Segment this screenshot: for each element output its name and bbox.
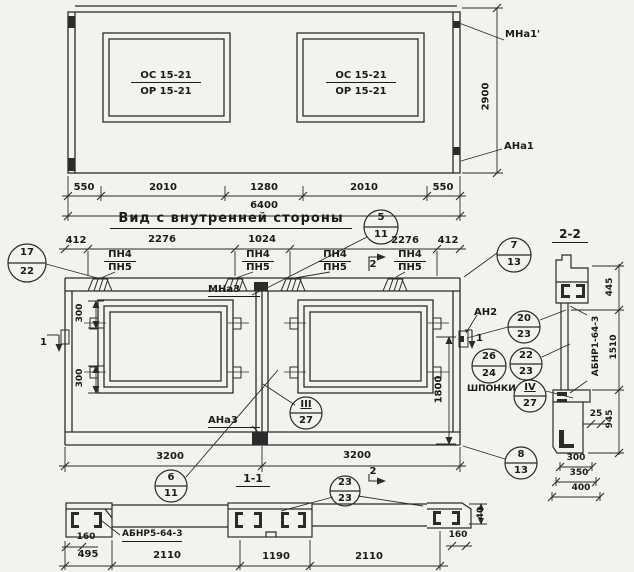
anchor-label-ana3: АНа3 xyxy=(208,415,260,428)
callout-7-sheet: 13 xyxy=(497,257,531,268)
dim-400-sec: 400 xyxy=(562,484,600,494)
hinge-pn5-3: ПН5 xyxy=(319,262,351,273)
window2-mark-bottom: ОР 15-21 xyxy=(326,86,396,97)
dim-2110-left: 2110 xyxy=(145,550,189,561)
callout-23-sheet: 23 xyxy=(330,493,360,504)
window1-mark-bottom: ОР 15-21 xyxy=(131,86,201,97)
hinge-pn4-4: ПН4 xyxy=(394,249,426,262)
dim-300-sec: 300 xyxy=(558,454,594,464)
dim-550-right: 550 xyxy=(421,182,465,193)
profile-mark-abnr5: АБНР5-64-3 xyxy=(122,530,182,542)
callout-8-sheet: 13 xyxy=(505,465,537,476)
dim-1510: 1510 xyxy=(610,325,620,369)
callout-8-num: 8 xyxy=(505,449,537,460)
callout-26-num: 26 xyxy=(472,351,506,362)
callout-7-num: 7 xyxy=(497,240,531,251)
hinge-pn5-4: ПН5 xyxy=(394,262,426,273)
hinge-pn4-2: ПН4 xyxy=(242,249,274,262)
dim-2900: 2900 xyxy=(481,79,492,115)
dim-350-sec: 350 xyxy=(560,469,598,479)
dim-25: 25 xyxy=(588,410,604,420)
callout-roman3-num: III xyxy=(290,399,322,410)
callout-roman4-num: IV xyxy=(514,382,546,393)
callout-22-num: 22 xyxy=(510,350,542,361)
callout-5-sheet: 11 xyxy=(364,229,398,240)
anchor-label-an2: АН2 xyxy=(474,307,497,318)
drawing-linework xyxy=(0,0,634,572)
dim-160-left: 160 xyxy=(72,533,100,543)
dim-3200-left: 3200 xyxy=(146,451,194,462)
dim-160-right: 160 xyxy=(444,531,472,541)
section2-mark-bottom: 2 xyxy=(366,466,380,477)
panel-drawing-sheet: ОС 15-21 ОР 15-21 ОС 15-21 ОР 15-21 МНа1… xyxy=(0,0,634,572)
dim-495: 495 xyxy=(66,549,110,560)
anchor-label-mna3: МНа3 xyxy=(208,284,260,297)
window1-mark-top: ОС 15-21 xyxy=(131,70,201,83)
dim-2276-left: 2276 xyxy=(140,234,184,245)
callout-20-sheet: 23 xyxy=(508,329,540,340)
window2-mark-top: ОС 15-21 xyxy=(326,70,396,83)
section-2-2-title: 2-2 xyxy=(552,228,588,243)
callout-22-sheet: 23 xyxy=(510,366,542,377)
callout-20-num: 20 xyxy=(508,313,540,324)
section2-mark-top: 2 xyxy=(366,259,380,270)
callout-6-sheet: 11 xyxy=(155,488,187,499)
dim-1800: 1800 xyxy=(434,370,445,410)
hinge-pn5-1: ПН5 xyxy=(104,262,136,273)
dim-300-upper: 300 xyxy=(76,295,86,331)
dim-412-left: 412 xyxy=(54,235,98,246)
dim-2110-right: 2110 xyxy=(347,551,391,562)
callout-roman4-sheet: 27 xyxy=(514,398,546,409)
hinge-pn4-3: ПН4 xyxy=(319,249,351,262)
callout-23-num: 23 xyxy=(330,477,360,488)
callout-26-sheet: 24 xyxy=(472,368,506,379)
dim-1280: 1280 xyxy=(242,182,286,193)
dim-1190: 1190 xyxy=(254,551,298,562)
dim-945: 945 xyxy=(606,401,616,437)
dim-3200-right: 3200 xyxy=(333,450,381,461)
dim-6400: 6400 xyxy=(240,200,288,211)
dim-1024: 1024 xyxy=(240,234,284,245)
section-1-1-title: 1-1 xyxy=(236,473,270,487)
anchor-label-ana1: АНа1 xyxy=(504,141,534,152)
section1-mark-left: 1 xyxy=(40,337,47,348)
anchor-label-mna1: МНа1' xyxy=(505,29,540,40)
dim-40: 40 xyxy=(477,503,487,523)
callout-5-num: 5 xyxy=(364,212,398,223)
section1-mark-right: 1 xyxy=(476,333,483,344)
keys-label: ШПОНКИ xyxy=(467,385,516,395)
dim-445: 445 xyxy=(606,269,616,305)
dim-2010-left: 2010 xyxy=(141,182,185,193)
callout-17-num: 17 xyxy=(8,247,46,258)
hinge-pn5-2: ПН5 xyxy=(242,262,274,273)
inner-view-title: Вид с внутренней стороны xyxy=(110,212,352,229)
callout-6-num: 6 xyxy=(155,472,187,483)
callout-roman3-sheet: 27 xyxy=(290,415,322,426)
profile-mark-abnr1: АБНР1-64-3 xyxy=(592,306,602,386)
dim-412-right: 412 xyxy=(426,235,470,246)
callout-17-sheet: 22 xyxy=(8,266,46,277)
dim-550-left: 550 xyxy=(62,182,106,193)
callout-circles xyxy=(8,210,546,506)
hinge-pn4-1: ПН4 xyxy=(104,249,136,262)
dim-300-lower: 300 xyxy=(76,360,86,396)
dim-2010-right: 2010 xyxy=(342,182,386,193)
